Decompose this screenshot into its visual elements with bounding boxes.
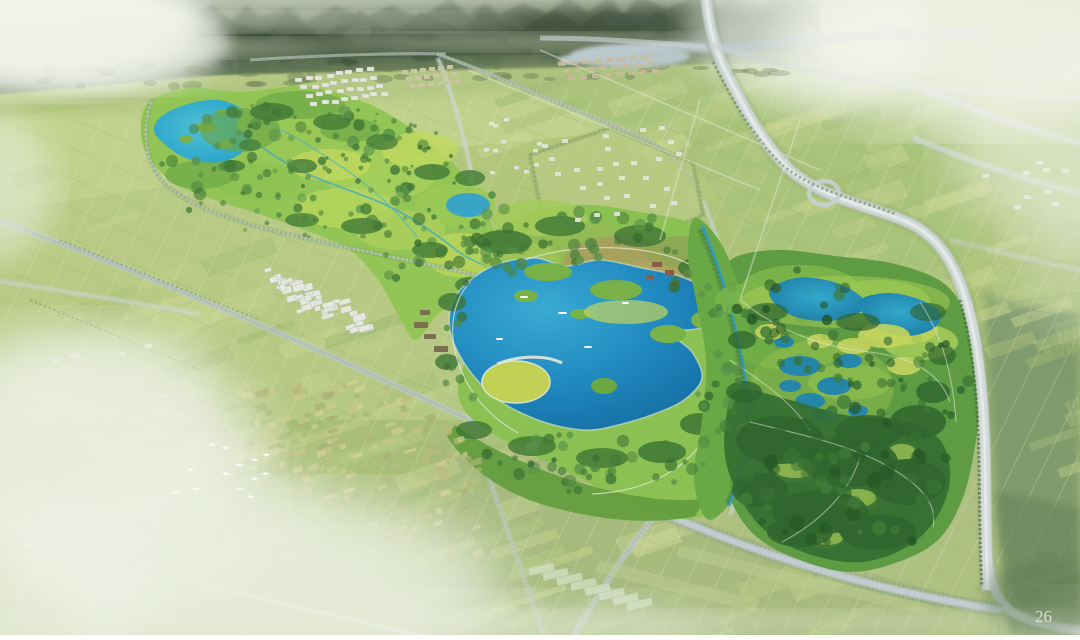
svg-text:26: 26 bbox=[1035, 607, 1052, 626]
